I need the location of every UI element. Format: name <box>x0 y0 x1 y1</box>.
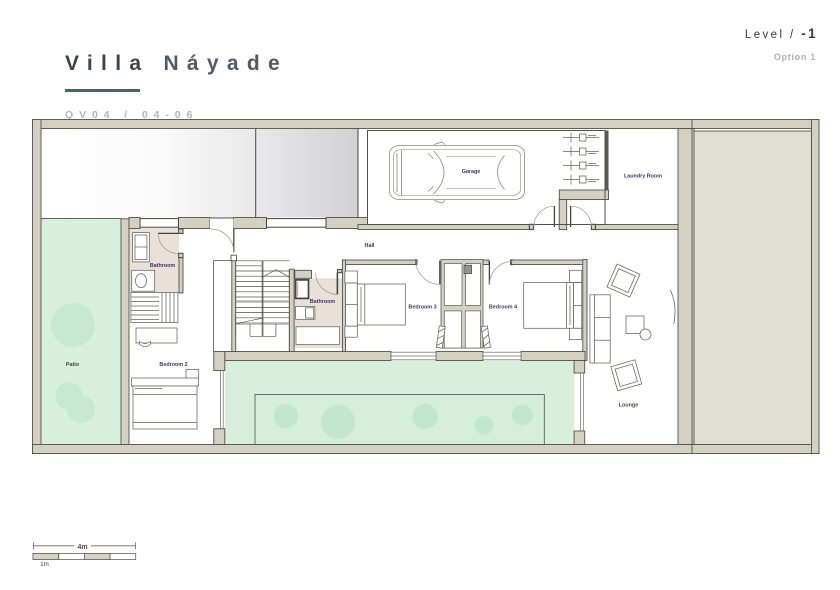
svg-text:Bedroom 3: Bedroom 3 <box>408 305 436 311</box>
svg-text:Garage: Garage <box>462 169 481 175</box>
svg-text:Lounge: Lounge <box>619 403 638 409</box>
svg-text:4m: 4m <box>77 544 87 551</box>
svg-text:Bedroom 2: Bedroom 2 <box>159 362 187 368</box>
svg-text:Laundry Room: Laundry Room <box>624 174 662 180</box>
svg-text:Bathroom: Bathroom <box>150 263 176 269</box>
svg-text:Hall: Hall <box>365 243 375 249</box>
svg-text:1m: 1m <box>40 561 49 568</box>
svg-text:Patio: Patio <box>66 362 80 368</box>
svg-text:Bedroom 4: Bedroom 4 <box>489 305 517 311</box>
svg-text:Bathroom: Bathroom <box>310 299 336 305</box>
